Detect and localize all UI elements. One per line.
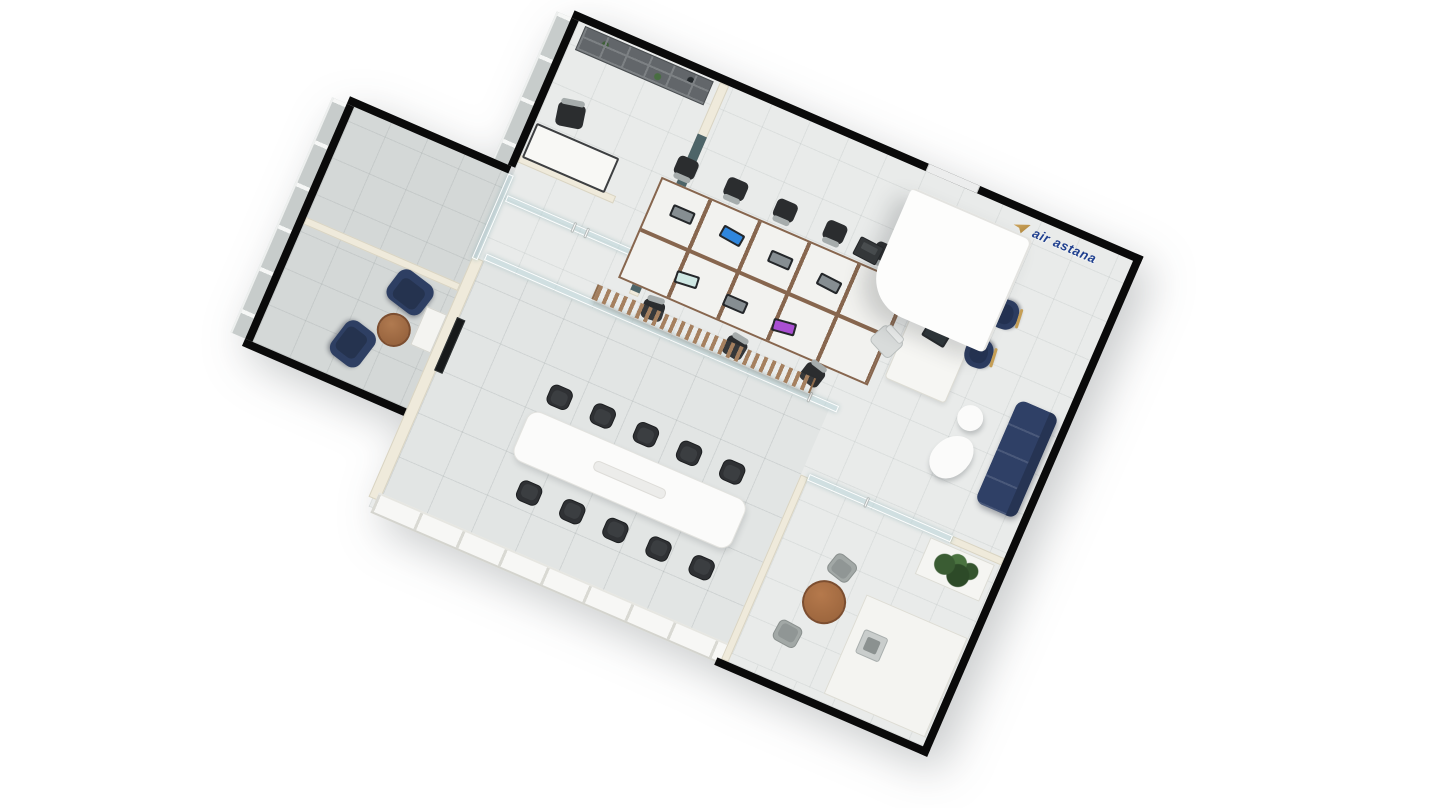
executive-chair — [554, 101, 586, 130]
building-shadow: air astana — [0, 0, 1436, 808]
plan-items — [153, 0, 1199, 808]
office-floorplan: air astana — [153, 0, 1199, 808]
floorplan-canvas: air astana — [0, 0, 1436, 808]
